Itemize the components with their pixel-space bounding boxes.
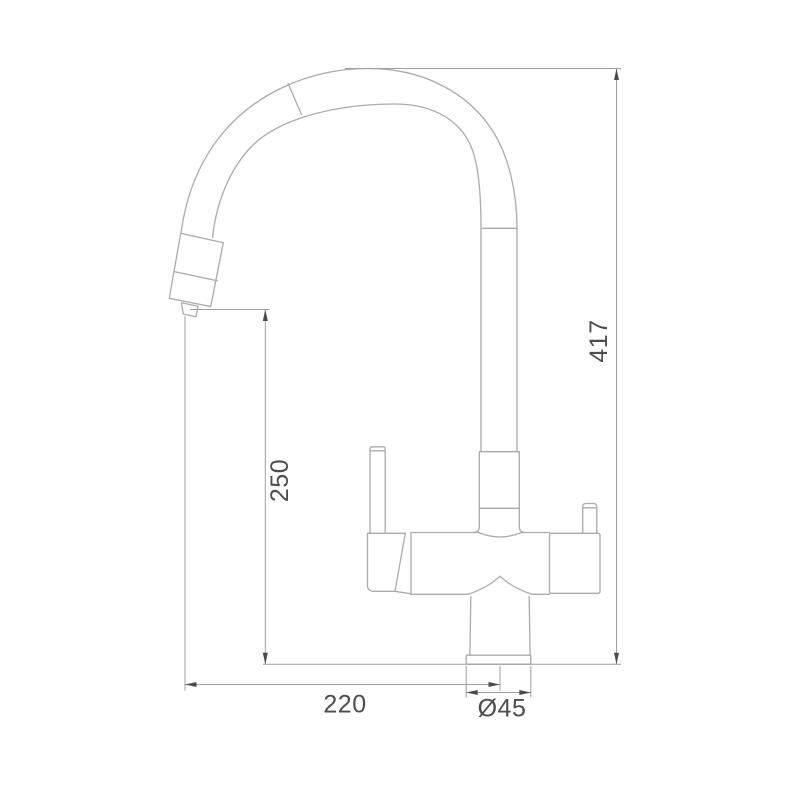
faucet-outline: [169, 69, 600, 665]
collar-lower-right-side: [519, 508, 525, 532]
dimension-label-outlet-height: 250: [266, 459, 294, 502]
dimension-label-base-diameter: Ø45: [478, 695, 527, 723]
left-handle-housing: [368, 533, 406, 591]
left-lever-handle: [370, 447, 385, 534]
spray-head-seam: [175, 272, 217, 281]
spout-seam-line: [288, 83, 301, 114]
right-valve-cap: [550, 533, 601, 593]
spout-outer-curve: [181, 69, 517, 452]
arrow-220-right: [489, 682, 501, 687]
base-arch: [468, 576, 532, 594]
arrow-417-top: [614, 69, 619, 81]
base-flange: [466, 655, 531, 664]
arrow-45-left: [466, 690, 478, 695]
spray-head: [169, 233, 223, 306]
connector-collar: [479, 452, 519, 509]
base-column-left-side: [470, 597, 471, 656]
dimension-label-overall-height: 417: [585, 319, 613, 362]
dimension-label-spout-reach: 220: [323, 691, 366, 719]
left-housing-to-body-line: [395, 591, 411, 594]
arrow-250-bottom: [263, 653, 268, 665]
dimension-lines: [185, 69, 621, 698]
dimension-arrowheads: [185, 69, 619, 696]
faucet-dimension-drawing: 417 250 220 Ø45: [0, 0, 800, 800]
faucet-dimension-drawing-page: 417 250 220 Ø45: [0, 0, 800, 800]
base-column-right-side: [529, 597, 530, 656]
spout-inner-curve: [213, 104, 482, 452]
arrow-220-left: [185, 682, 197, 687]
collar-lower-left-side: [474, 508, 480, 532]
arrow-250-top: [263, 310, 268, 322]
pipe-bottom-curve: [479, 533, 522, 538]
arrow-417-bottom: [614, 653, 619, 665]
